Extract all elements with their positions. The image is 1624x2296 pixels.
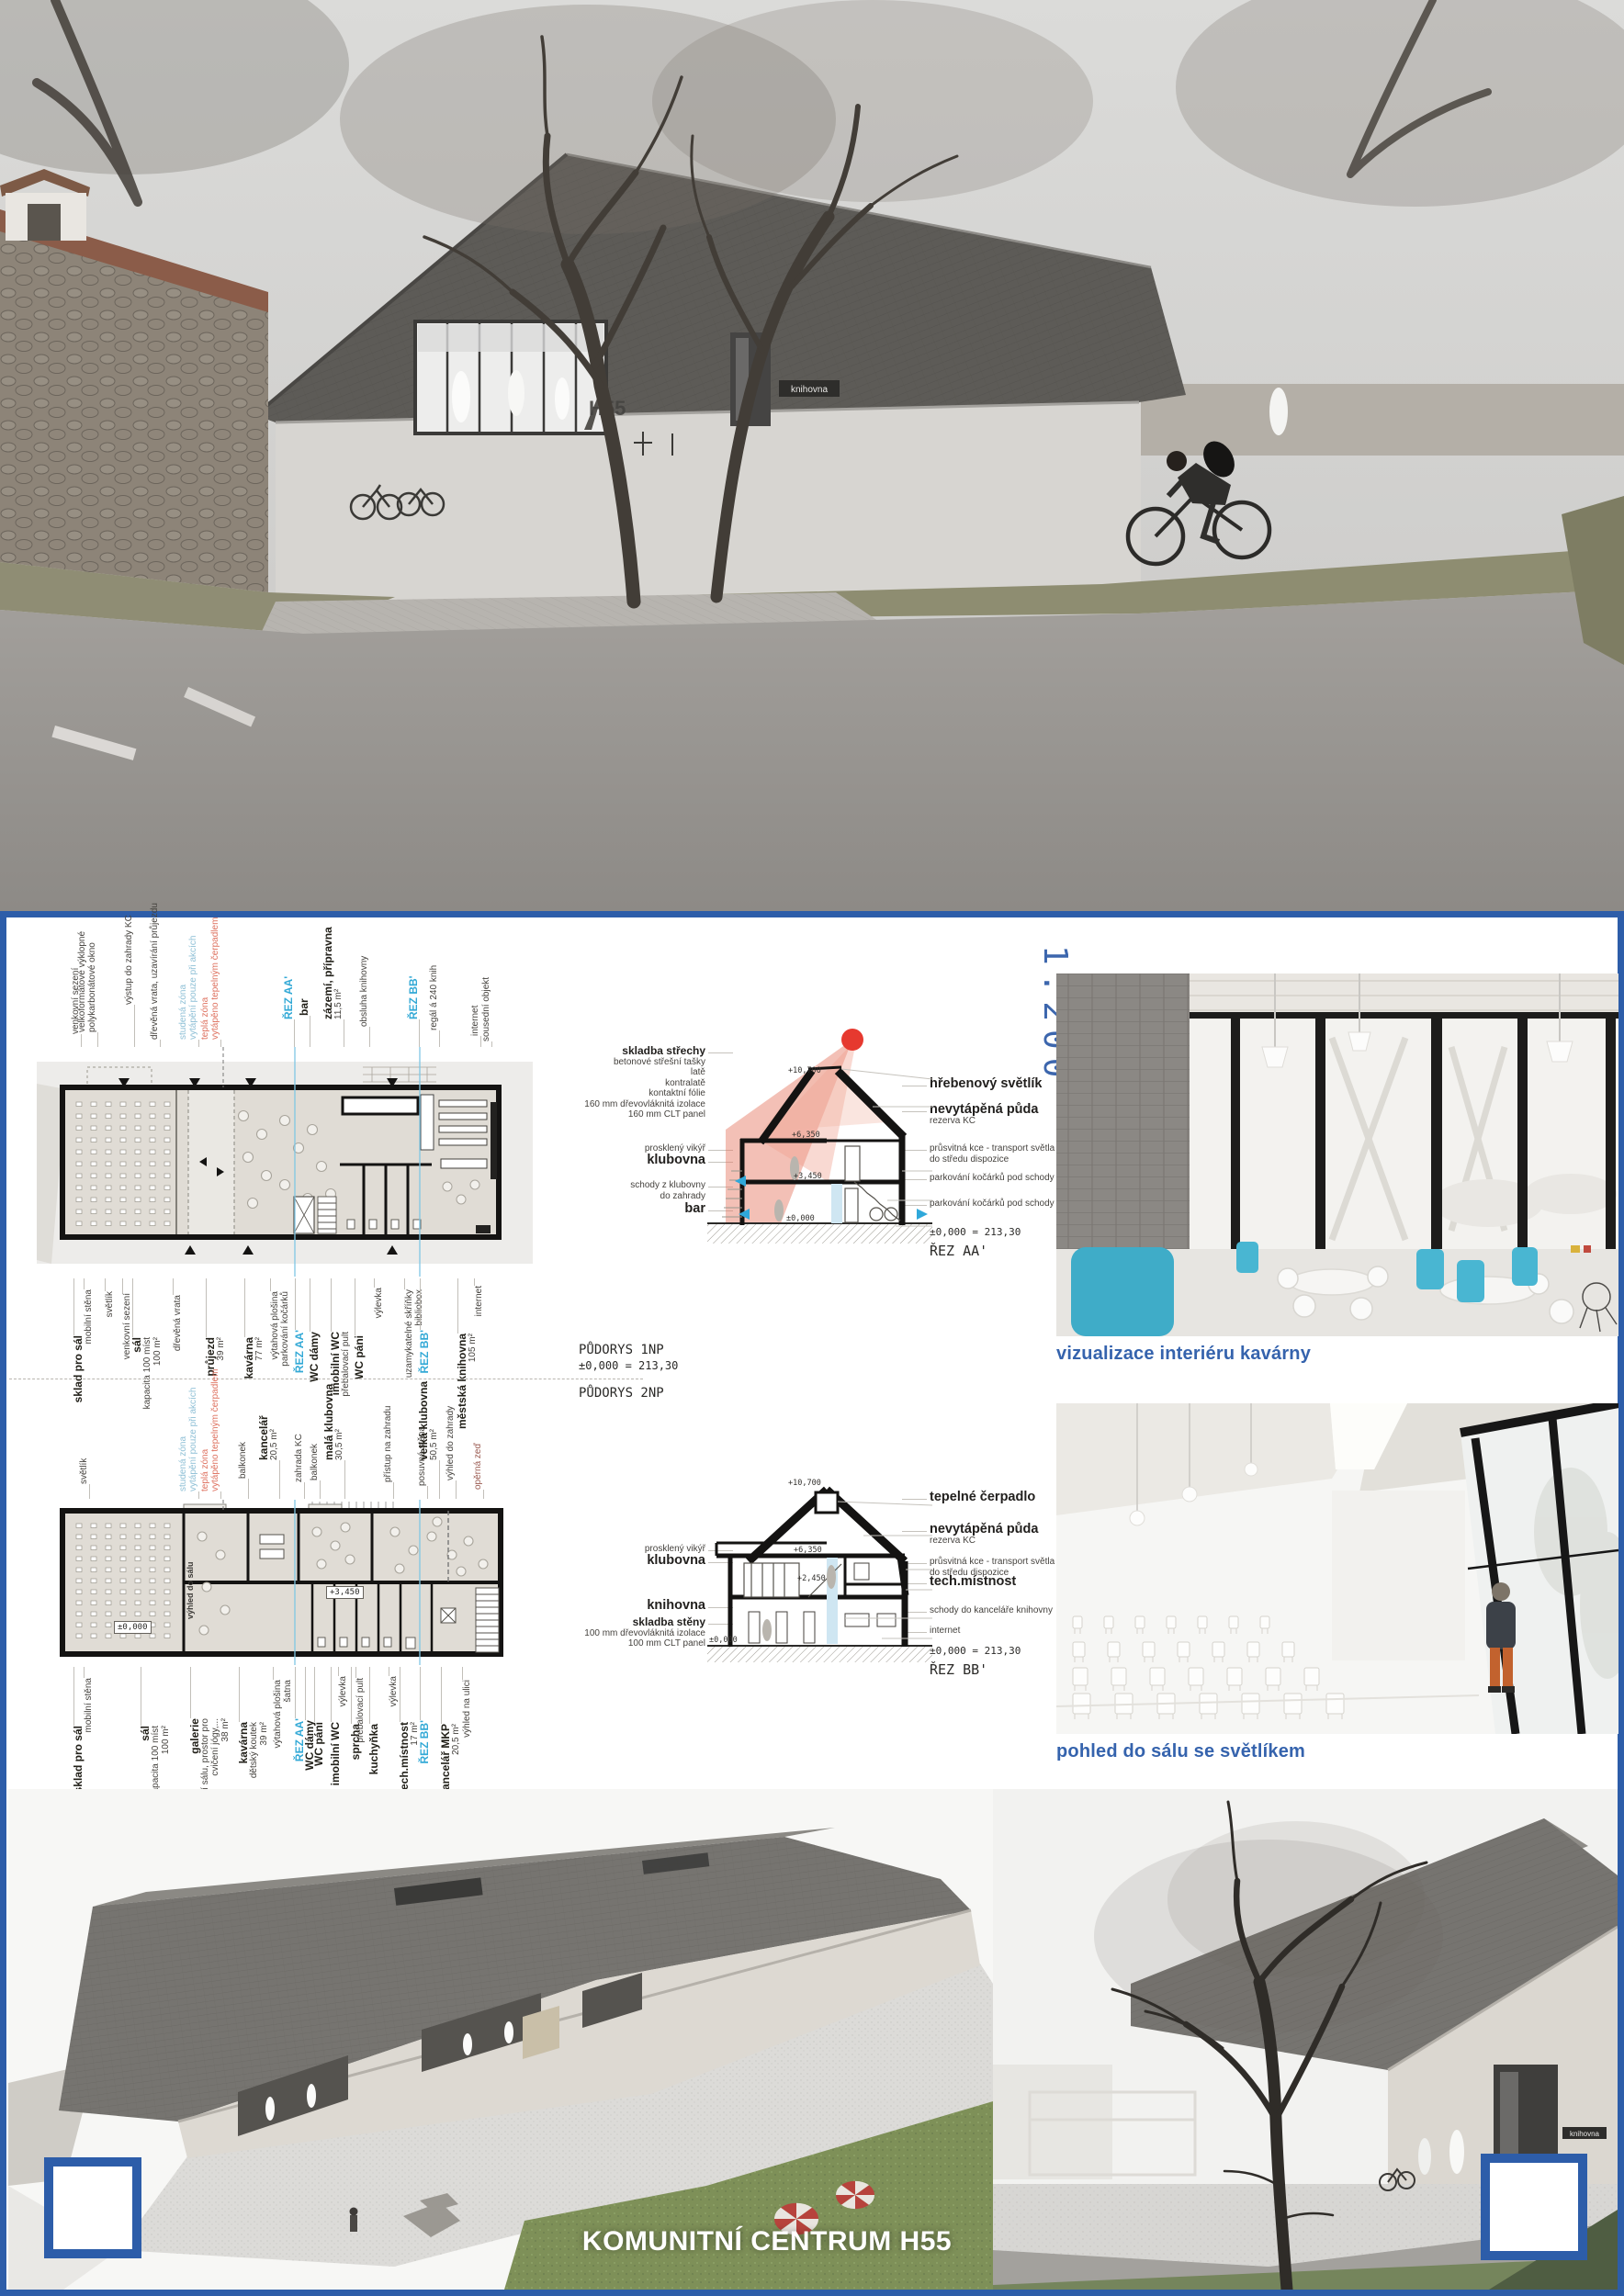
- board-title: KOMUNITNÍ CENTRUM H55: [582, 2226, 952, 2257]
- leader-line: [320, 1480, 321, 1499]
- leader-line: [270, 1278, 271, 1291]
- corner-square-left: [44, 2157, 141, 2258]
- leader-line: [73, 1667, 74, 1726]
- leader-line: [89, 1484, 90, 1499]
- leader-line: [483, 1490, 484, 1499]
- render-cafe-graphic: [1056, 974, 1618, 1336]
- leader-line: [331, 1667, 332, 1722]
- section-annotation: nevytápěná půdarezerva KC: [930, 1105, 1077, 1126]
- leader-line: [374, 1278, 375, 1288]
- plan1-top-labels: venkovní sezenívelkoformátové výklopnépo…: [37, 926, 533, 1047]
- leader-line: [310, 1278, 310, 1332]
- figure: [1269, 388, 1288, 435]
- section-aa-name: ŘEZ AA': [930, 1243, 987, 1259]
- gardener-figure: [350, 2208, 358, 2233]
- section-bb-drawing: +10,700 +6,350 +2,450 ±0,000: [707, 1467, 932, 1669]
- leader-line: [338, 1667, 339, 1676]
- leader-line: [173, 1278, 174, 1295]
- leader-line: [239, 1667, 240, 1722]
- plan2-top-labels: světlíkstudená zónavytápění pouze při ak…: [37, 1400, 533, 1499]
- section-annotation: bar: [531, 1204, 705, 1215]
- section-aa: skladba střechybetonové střešní taškylat…: [634, 969, 1029, 1272]
- leader-line: [344, 1019, 344, 1047]
- section-bb-datum: ±0,000 = 213,30: [930, 1645, 1021, 1657]
- render-aerial-graphic: [8, 1789, 993, 2290]
- leader-line: [132, 1278, 133, 1337]
- plan2-title: PŮDORYS 2NP: [579, 1386, 664, 1401]
- level-mark-upper: +3,450: [326, 1586, 364, 1599]
- leader-line: [462, 1667, 463, 1680]
- section-annotation: tepelné čerpadlo: [930, 1492, 1077, 1503]
- leader-line: [351, 1667, 352, 1724]
- leader-line: [427, 1486, 428, 1499]
- leader-line: [273, 1667, 274, 1680]
- section-bb: prosklený vikýřklubovnaknihovnaskladba s…: [634, 1456, 1029, 1759]
- leader-line: [105, 1278, 106, 1291]
- leader-line: [439, 1460, 440, 1499]
- leader-line: [198, 1491, 199, 1499]
- leader-line: [344, 1460, 345, 1499]
- render-hall-graphic: [1056, 1403, 1618, 1734]
- render-hall-interior: [1056, 1403, 1618, 1734]
- corner-square-right: [1481, 2154, 1587, 2260]
- section-annotation: schody z klubovnydo zahrady: [531, 1180, 705, 1201]
- divider: [9, 1379, 643, 1379]
- section-annotation: tech.místnost: [930, 1577, 1077, 1588]
- elevation-label: +3,450: [794, 1172, 822, 1181]
- leader-line: [84, 1667, 85, 1678]
- street-photo-graphic: H55 knihovna: [0, 0, 1624, 911]
- leader-line: [73, 1278, 74, 1335]
- leader-line: [369, 1027, 370, 1047]
- leader-line: [295, 1667, 296, 1718]
- street-photo: H55 knihovna: [0, 0, 1624, 911]
- plan-1np-drawing: [37, 1047, 533, 1277]
- leader-line: [404, 1278, 405, 1289]
- plan2-title-text: PŮDORYS 2NP: [579, 1386, 664, 1401]
- caption-hall: pohled do sálu se světlíkem: [1056, 1741, 1305, 1762]
- leader-line: [304, 1482, 305, 1499]
- leader-line: [122, 1278, 123, 1293]
- leader-line: [190, 1667, 191, 1718]
- section-annotation: parkování kočárků pod schody: [930, 1173, 1077, 1184]
- plan1-title-text: PŮDORYS 1NP: [579, 1343, 678, 1358]
- section-annotation: klubovna: [531, 1155, 705, 1166]
- leader-line: [220, 1491, 221, 1499]
- elevation-label: +10,700: [788, 1066, 821, 1075]
- elevation-label: +6,350: [792, 1131, 820, 1140]
- library-sign-small: knihovna: [1570, 2130, 1600, 2138]
- leader-line: [400, 1667, 400, 1722]
- caption-cafe: vizualizace interiéru kavárny: [1056, 1344, 1311, 1365]
- section-annotation: internet: [930, 1626, 1077, 1637]
- section-annotation: klubovna: [531, 1556, 705, 1567]
- section-annotation: hřebenový světlík: [930, 1079, 1077, 1090]
- leader-line: [294, 1019, 295, 1047]
- level-mark-ground: ±0,000: [114, 1621, 152, 1634]
- render-aerial-courtyard: [8, 1789, 993, 2290]
- leader-line: [456, 1480, 457, 1499]
- leader-line: [420, 1278, 421, 1330]
- leader-line: [84, 1278, 85, 1289]
- leader-line: [97, 1032, 98, 1047]
- leader-line: [220, 1040, 221, 1047]
- leader-line: [134, 1005, 135, 1047]
- leader-line: [457, 1278, 458, 1334]
- section-aa-drawing: +10,700 +6,350 +3,450 ±0,000: [707, 992, 932, 1249]
- striped-umbrella: [836, 2181, 874, 2209]
- elevation-label: +6,350: [794, 1546, 822, 1555]
- drawings-panel: 1:200 venkovní sezenívelkoformátové výkl…: [0, 911, 1624, 2296]
- leader-line: [369, 1667, 370, 1724]
- leader-line: [389, 1667, 389, 1676]
- leader-line: [310, 1016, 310, 1047]
- plan1-level: ±0,000 = 213,30: [579, 1358, 678, 1374]
- leader-line: [355, 1667, 356, 1678]
- render-cafe-interior: [1056, 974, 1618, 1336]
- leader-line: [331, 1278, 332, 1332]
- plan2-bottom-labels: sklad pro sálmobilní stěnasálkapacita 10…: [37, 1667, 533, 1805]
- leader-line: [355, 1278, 355, 1335]
- section-annotation: skladba střechybetonové střešní taškylat…: [531, 1046, 705, 1120]
- leader-line: [419, 1019, 420, 1047]
- elevation-label: +10,700: [788, 1479, 821, 1488]
- leader-line: [198, 1040, 199, 1047]
- leader-line: [141, 1667, 141, 1726]
- plan-2np-drawing: výhled do sálu: [37, 1500, 533, 1665]
- leader-line: [314, 1667, 315, 1722]
- section-annotation: skladba stěny100 mm dřevovláknitá izolac…: [531, 1617, 705, 1649]
- leader-line: [305, 1667, 306, 1720]
- section-annotation: knihovna: [531, 1601, 705, 1612]
- section-bb-name: ŘEZ BB': [930, 1661, 987, 1678]
- leader-line: [206, 1278, 207, 1337]
- library-sign: knihovna: [791, 385, 828, 395]
- leader-line: [420, 1667, 421, 1720]
- leader-line: [295, 1278, 296, 1330]
- section-annotation: schody do kanceláře knihovny: [930, 1605, 1077, 1616]
- section-annotation: nevytápěná půdarezerva KC: [930, 1525, 1077, 1546]
- elevation-label: ±0,000: [786, 1214, 815, 1223]
- plan1-bottom-labels: sklad pro sálmobilní stěnasvětlíkvenkovn…: [37, 1278, 533, 1398]
- section-annotation: průsvitná kce - transport světlado střed…: [930, 1143, 1077, 1165]
- leader-line: [474, 1278, 475, 1286]
- section-annotation: parkování kočárků pod schody: [930, 1199, 1077, 1210]
- elevation-label: ±0,000: [709, 1636, 738, 1645]
- plan1-title: PŮDORYS 1NP ±0,000 = 213,30: [579, 1343, 678, 1374]
- leader-line: [393, 1482, 394, 1499]
- leader-line: [248, 1479, 249, 1499]
- presentation-board: H55 knihovna: [0, 0, 1624, 2296]
- section-aa-datum: ±0,000 = 213,30: [930, 1226, 1021, 1238]
- elevation-label: +2,450: [797, 1574, 826, 1583]
- leader-line: [279, 1460, 280, 1499]
- leader-line: [439, 1030, 440, 1047]
- leader-line: [160, 1040, 161, 1047]
- leader-line: [244, 1278, 245, 1337]
- view-to-hall-label: výhled do sálu: [186, 1561, 195, 1619]
- leader-line: [441, 1667, 442, 1724]
- leader-line: [81, 1034, 82, 1047]
